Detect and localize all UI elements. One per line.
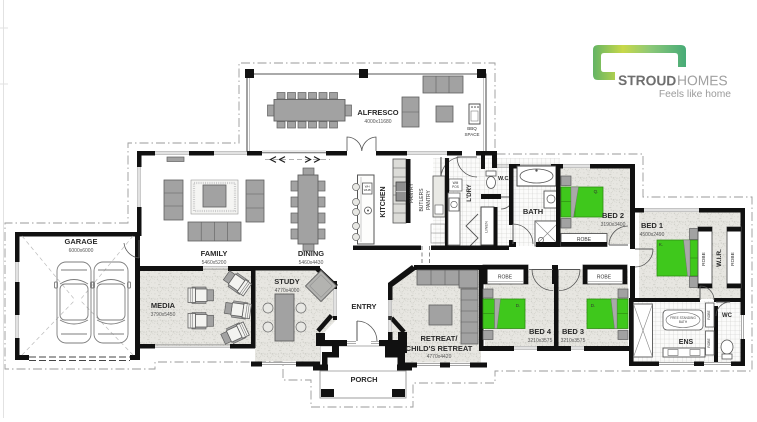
svg-text:PANTRY: PANTRY: [409, 182, 415, 202]
svg-text:ENS: ENS: [679, 339, 694, 346]
svg-text:4500x2490: 4500x2490: [640, 232, 665, 238]
svg-text:5460x5200: 5460x5200: [202, 260, 227, 266]
svg-text:K.: K.: [659, 242, 663, 247]
svg-text:MEDIA: MEDIA: [151, 301, 176, 310]
svg-text:BED 4: BED 4: [529, 327, 552, 336]
svg-text:RETREAT/: RETREAT/: [421, 334, 459, 343]
svg-text:POS: POS: [452, 185, 459, 189]
svg-text:BBQ: BBQ: [467, 126, 477, 131]
svg-text:LINEN: LINEN: [484, 221, 489, 233]
svg-text:PANTRY: PANTRY: [426, 189, 432, 209]
svg-text:ROBE: ROBE: [707, 338, 711, 348]
svg-text:Feels like home: Feels like home: [659, 89, 731, 100]
svg-text:W.I.R.: W.I.R.: [716, 249, 723, 267]
svg-text:BATH: BATH: [523, 207, 543, 216]
svg-text:ROBE: ROBE: [498, 275, 513, 281]
svg-text:WHB: WHB: [364, 188, 371, 192]
svg-text:ALFRESCO: ALFRESCO: [357, 108, 398, 117]
svg-text:PORCH: PORCH: [350, 375, 377, 384]
svg-text:L'DRY: L'DRY: [467, 184, 473, 202]
svg-text:ROBE: ROBE: [701, 252, 707, 266]
svg-text:ENTRY: ENTRY: [351, 302, 376, 311]
svg-text:ROBE: ROBE: [577, 237, 592, 243]
svg-text:4770x4000: 4770x4000: [275, 288, 300, 294]
svg-text:D.: D.: [516, 303, 521, 308]
svg-text:HOMES: HOMES: [677, 73, 728, 88]
svg-text:D.: D.: [591, 303, 596, 308]
svg-text:BED 2: BED 2: [602, 211, 624, 220]
svg-text:FAMILY: FAMILY: [201, 249, 228, 258]
svg-text:3210x3575: 3210x3575: [528, 338, 553, 344]
svg-text:ROBE: ROBE: [707, 310, 711, 320]
svg-text:6000x6000: 6000x6000: [69, 248, 94, 254]
svg-text:3190x3400: 3190x3400: [601, 222, 626, 228]
svg-text:5460x4430: 5460x4430: [299, 260, 324, 266]
svg-text:ROBE: ROBE: [730, 252, 736, 266]
svg-text:W.C.: W.C.: [498, 176, 510, 182]
svg-text:CHILD'S RETREAT: CHILD'S RETREAT: [406, 344, 473, 353]
svg-text:STROUD: STROUD: [618, 73, 676, 88]
svg-text:SPACE: SPACE: [465, 132, 480, 137]
svg-text:GARAGE: GARAGE: [65, 237, 98, 246]
svg-text:KITCHEN: KITCHEN: [380, 186, 387, 217]
svg-text:BED 3: BED 3: [562, 327, 584, 336]
svg-text:4770x4420: 4770x4420: [427, 354, 452, 360]
svg-text:ROBE: ROBE: [597, 275, 612, 281]
svg-text:BATH: BATH: [679, 320, 688, 324]
svg-text:Q.: Q.: [594, 189, 599, 194]
svg-text:BUTLERS: BUTLERS: [419, 188, 425, 212]
svg-text:WC: WC: [722, 313, 733, 319]
svg-text:BED 1: BED 1: [641, 221, 663, 230]
svg-text:DINING: DINING: [298, 249, 324, 258]
svg-text:STUDY: STUDY: [274, 277, 299, 286]
svg-text:3790x5450: 3790x5450: [151, 312, 176, 318]
svg-text:4000x11680: 4000x11680: [364, 119, 391, 125]
svg-text:3210x3575: 3210x3575: [561, 338, 586, 344]
